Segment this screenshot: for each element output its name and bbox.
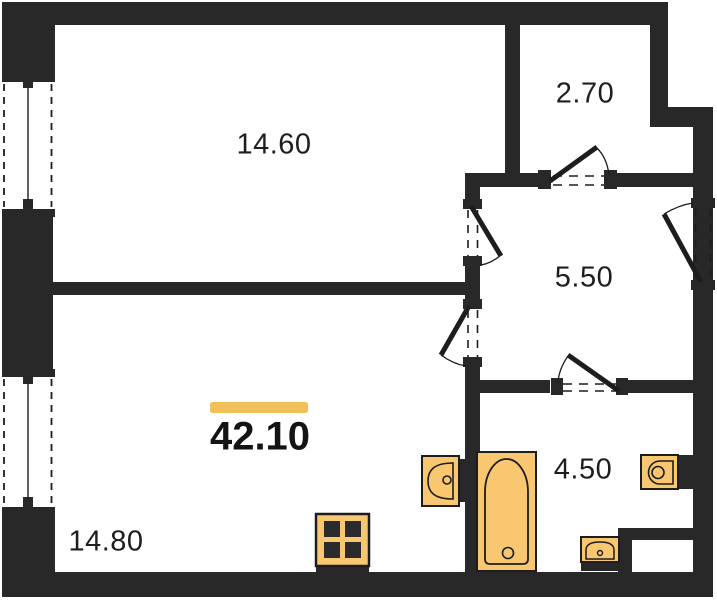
bathtub-icon bbox=[477, 452, 536, 571]
window-top-left bbox=[2, 74, 55, 217]
small-sink-icon bbox=[581, 537, 619, 571]
bedroom-door bbox=[463, 199, 501, 266]
balcony-door bbox=[538, 147, 617, 189]
total-area-accent-bar bbox=[210, 402, 308, 413]
room-area-label-bathroom: 4.50 bbox=[554, 454, 612, 487]
room-area-label-bottom-left: 14.80 bbox=[68, 526, 143, 559]
living-room-door bbox=[441, 299, 482, 367]
room-area-label-hallway: 5.50 bbox=[555, 262, 613, 295]
room-area-label-top-left: 14.60 bbox=[236, 129, 311, 162]
total-area-label: 42.10 bbox=[210, 415, 310, 460]
bathroom-door bbox=[551, 355, 628, 395]
room-area-label-top-right: 2.70 bbox=[556, 78, 614, 111]
floor-plan: 14.60 2.70 5.50 4.50 14.80 42.10 bbox=[0, 0, 717, 600]
toilet-icon bbox=[641, 455, 694, 489]
kitchen-sink-icon bbox=[422, 456, 468, 506]
stove-icon bbox=[316, 514, 369, 572]
window-bottom-left bbox=[2, 369, 55, 515]
